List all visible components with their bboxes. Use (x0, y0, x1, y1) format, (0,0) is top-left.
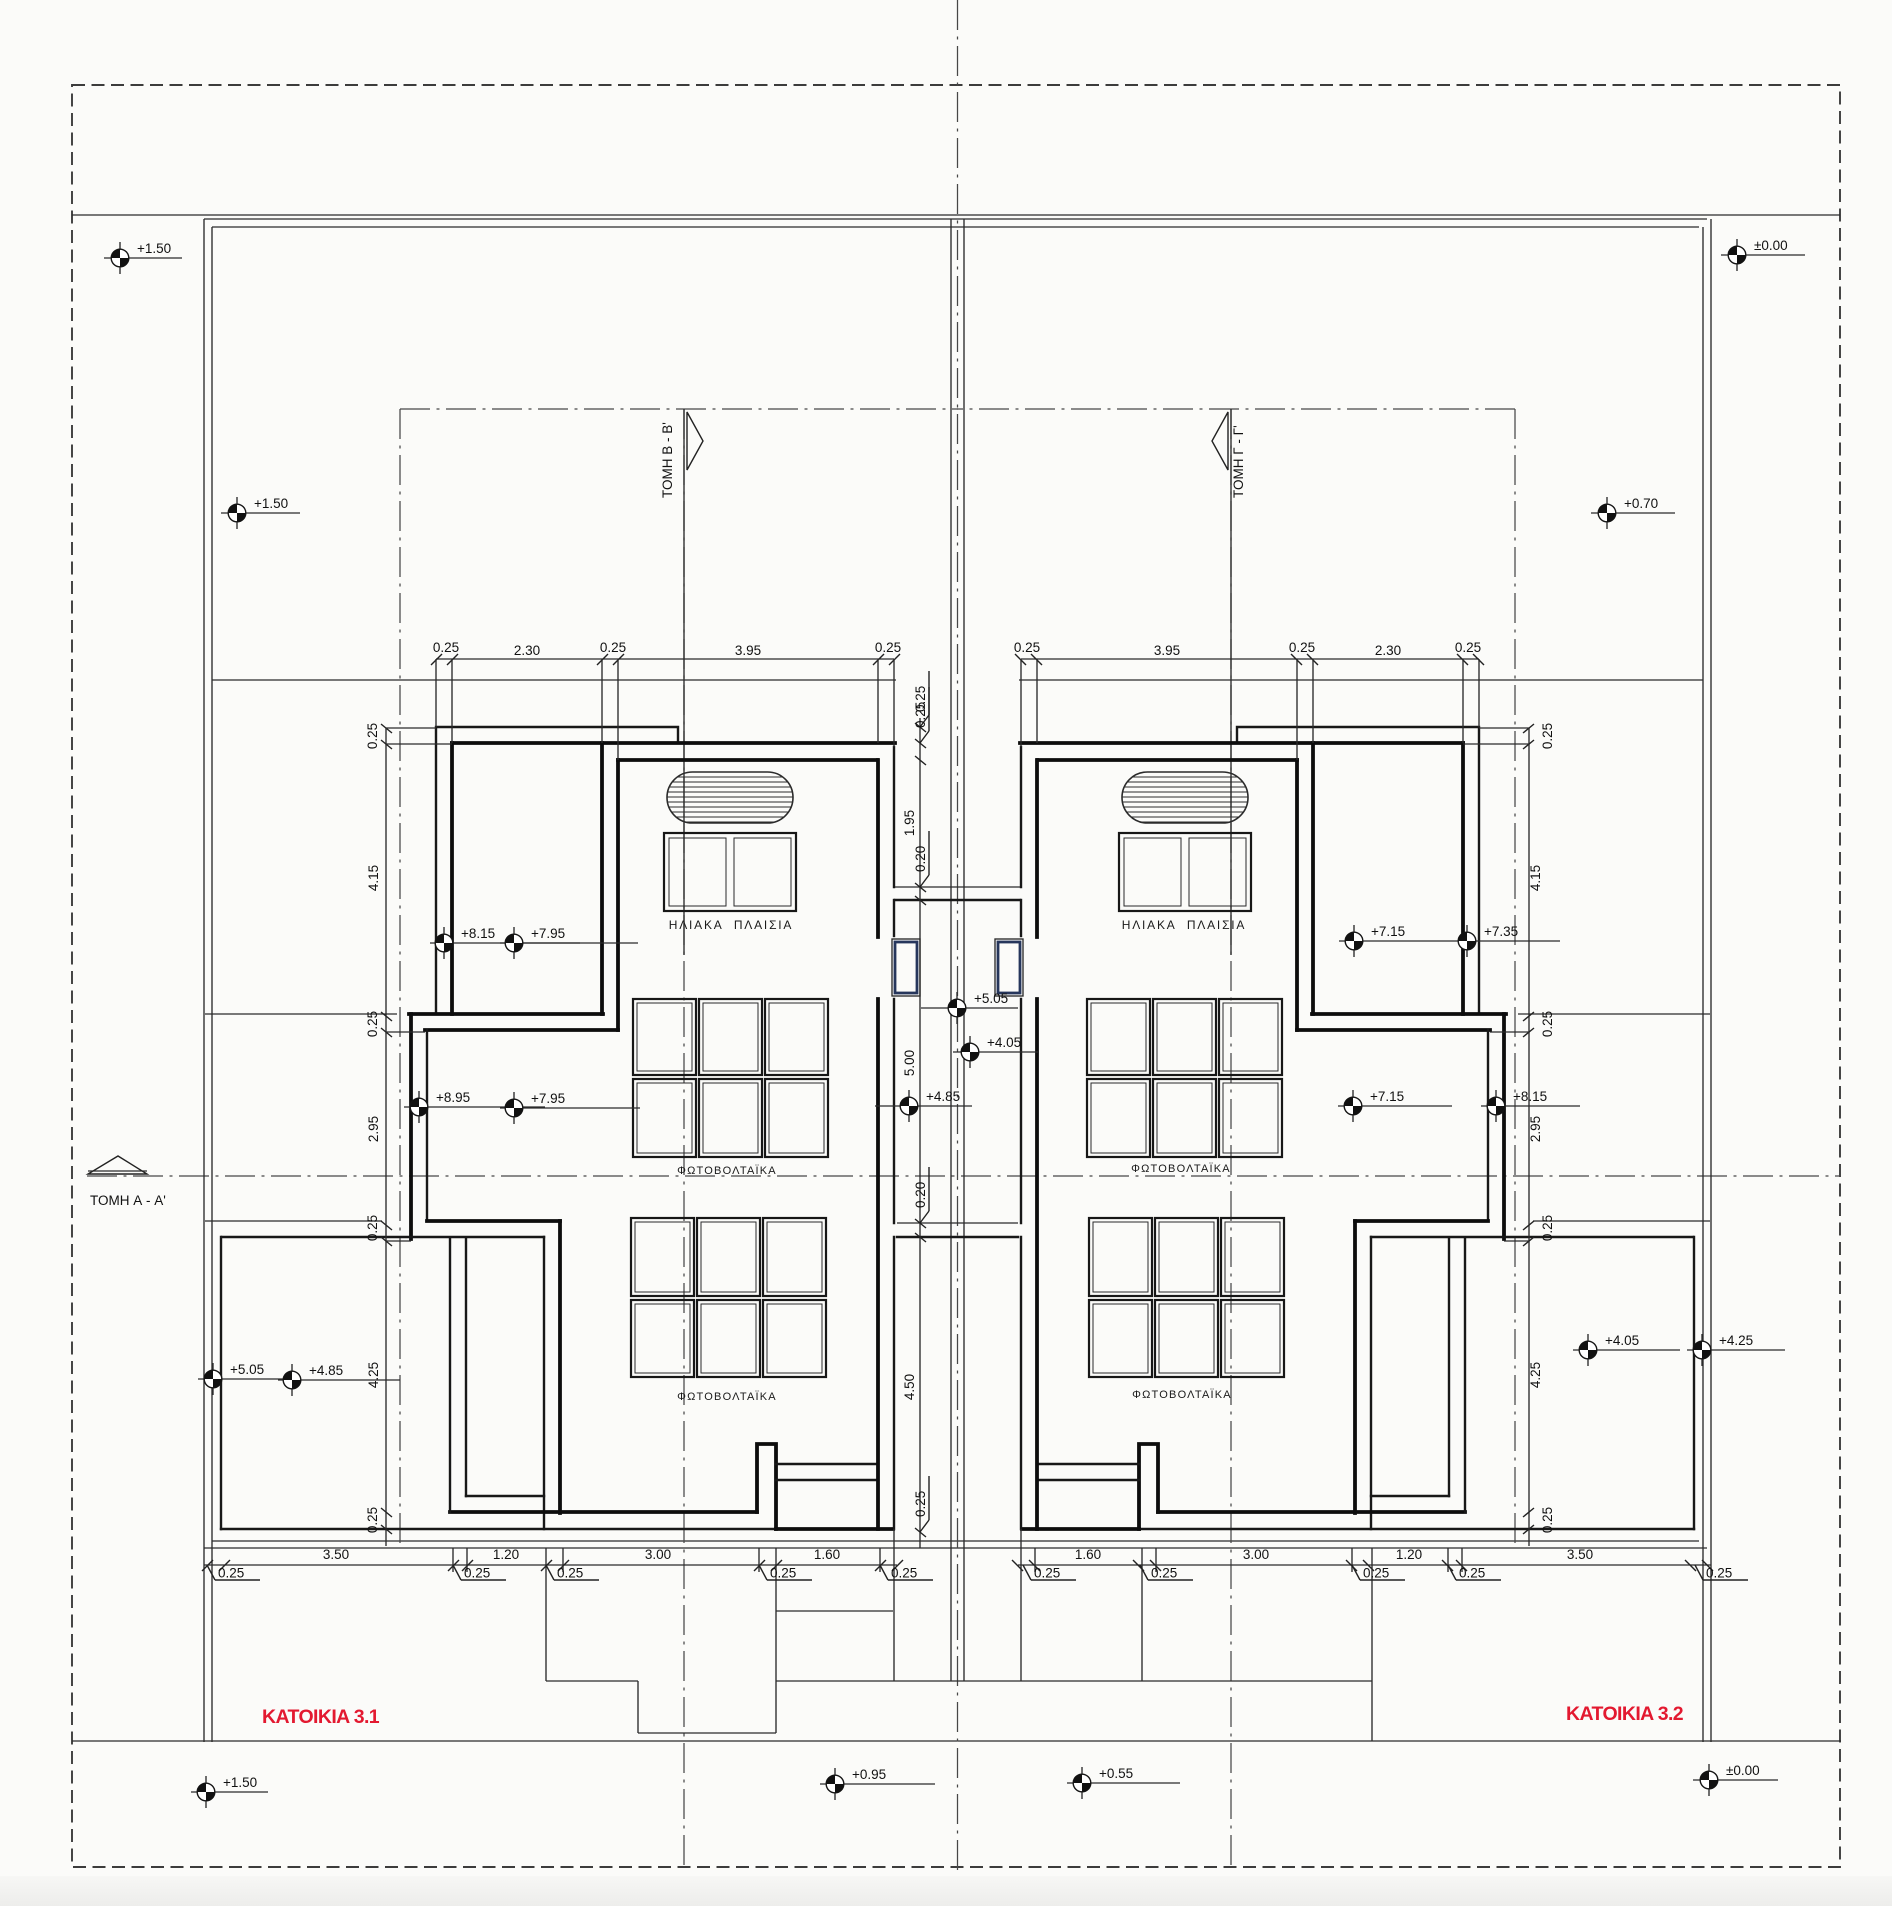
svg-text:0.25: 0.25 (1363, 1566, 1389, 1581)
svg-text:3.50: 3.50 (1567, 1547, 1593, 1562)
svg-text:4.25: 4.25 (1528, 1362, 1543, 1388)
svg-text:1.20: 1.20 (1396, 1547, 1422, 1562)
svg-text:+8.95: +8.95 (436, 1090, 470, 1105)
svg-text:0.20: 0.20 (913, 1182, 928, 1208)
svg-text:ΗΛΙΑΚΑ ΠΛΑΙΣΙΑ: ΗΛΙΑΚΑ ΠΛΑΙΣΙΑ (1122, 918, 1246, 932)
svg-text:±0.00: ±0.00 (1726, 1763, 1760, 1778)
svg-text:+1.50: +1.50 (137, 241, 171, 256)
svg-text:+1.50: +1.50 (254, 496, 288, 511)
svg-text:0.25: 0.25 (1459, 1566, 1485, 1581)
svg-text:ΤΟΜΗ Γ - Γ': ΤΟΜΗ Γ - Γ' (1231, 425, 1246, 498)
svg-text:+4.05: +4.05 (1605, 1333, 1639, 1348)
svg-text:3.00: 3.00 (1243, 1547, 1269, 1562)
svg-text:0.25: 0.25 (365, 723, 380, 749)
svg-text:ΤΟΜΗ Β - Β': ΤΟΜΗ Β - Β' (660, 422, 675, 498)
svg-text:+0.55: +0.55 (1099, 1766, 1133, 1781)
svg-text:0.25: 0.25 (1540, 1507, 1555, 1533)
svg-text:+7.95: +7.95 (531, 1091, 565, 1106)
svg-text:+4.85: +4.85 (926, 1089, 960, 1104)
svg-text:+8.15: +8.15 (1513, 1089, 1547, 1104)
svg-text:3.00: 3.00 (645, 1547, 671, 1562)
svg-text:1.95: 1.95 (902, 810, 917, 836)
svg-text:0.25: 0.25 (1540, 1011, 1555, 1037)
svg-text:0.25: 0.25 (1289, 640, 1315, 655)
svg-text:+0.70: +0.70 (1624, 496, 1658, 511)
svg-text:0.25: 0.25 (770, 1566, 796, 1581)
svg-text:0.25: 0.25 (1034, 1566, 1060, 1581)
svg-text:0.25: 0.25 (464, 1566, 490, 1581)
svg-text:0.25: 0.25 (218, 1566, 244, 1581)
svg-text:4.15: 4.15 (1528, 865, 1543, 891)
svg-text:0.25: 0.25 (1540, 1215, 1555, 1241)
svg-text:+7.15: +7.15 (1370, 1089, 1404, 1104)
svg-text:+0.95: +0.95 (852, 1767, 886, 1782)
svg-text:+7.35: +7.35 (1484, 924, 1518, 939)
svg-text:0.25: 0.25 (365, 1011, 380, 1037)
svg-text:4.50: 4.50 (902, 1374, 917, 1400)
svg-text:2.95: 2.95 (366, 1116, 381, 1142)
svg-text:0.25: 0.25 (1540, 723, 1555, 749)
svg-text:2.95: 2.95 (1528, 1116, 1543, 1142)
svg-text:4.15: 4.15 (366, 865, 381, 891)
svg-text:1.60: 1.60 (814, 1547, 840, 1562)
svg-text:±0.00: ±0.00 (1754, 238, 1788, 253)
svg-text:+5.05: +5.05 (230, 1362, 264, 1377)
svg-text:ΦΩΤΟΒΟΛΤΑΪΚΑ: ΦΩΤΟΒΟΛΤΑΪΚΑ (1132, 1389, 1232, 1401)
svg-text:0.25: 0.25 (1014, 640, 1040, 655)
svg-text:0.25: 0.25 (1455, 640, 1481, 655)
svg-text:0.25: 0.25 (875, 640, 901, 655)
svg-text:+5.05: +5.05 (974, 991, 1008, 1006)
svg-text:ΦΩΤΟΒΟΛΤΑΪΚΑ: ΦΩΤΟΒΟΛΤΑΪΚΑ (677, 1391, 777, 1403)
svg-text:KATOIKIA 3.2: KATOIKIA 3.2 (1566, 1703, 1684, 1725)
svg-text:+7.15: +7.15 (1371, 924, 1405, 939)
svg-text:+4.05: +4.05 (987, 1035, 1021, 1050)
svg-text:3.95: 3.95 (735, 643, 761, 658)
svg-text:+4.85: +4.85 (309, 1363, 343, 1378)
svg-text:0.25: 0.25 (433, 640, 459, 655)
svg-text:0.25: 0.25 (365, 1215, 380, 1241)
svg-text:4.25: 4.25 (366, 1362, 381, 1388)
svg-text:ΗΛΙΑΚΑ ΠΛΑΙΣΙΑ: ΗΛΙΑΚΑ ΠΛΑΙΣΙΑ (669, 918, 793, 932)
svg-text:1.20: 1.20 (493, 1547, 519, 1562)
svg-text:0.25: 0.25 (1706, 1566, 1732, 1581)
svg-text:KATOIKIA 3.1: KATOIKIA 3.1 (262, 1706, 380, 1728)
svg-text:ΦΩΤΟΒΟΛΤΑΪΚΑ: ΦΩΤΟΒΟΛΤΑΪΚΑ (677, 1165, 777, 1177)
svg-text:2.30: 2.30 (1375, 643, 1401, 658)
svg-text:0.25: 0.25 (600, 640, 626, 655)
svg-text:0.25: 0.25 (891, 1566, 917, 1581)
svg-text:5.00: 5.00 (902, 1050, 917, 1076)
svg-text:2.30: 2.30 (514, 643, 540, 658)
svg-text:3.95: 3.95 (1154, 643, 1180, 658)
svg-text:3.50: 3.50 (323, 1547, 349, 1562)
svg-text:ΤΟΜΗ Α - Α': ΤΟΜΗ Α - Α' (90, 1193, 166, 1208)
svg-text:0.25: 0.25 (557, 1566, 583, 1581)
svg-text:+4.25: +4.25 (1719, 1333, 1753, 1348)
svg-text:0.20: 0.20 (913, 846, 928, 872)
svg-text:+7.95: +7.95 (531, 926, 565, 941)
svg-text:0.25: 0.25 (365, 1507, 380, 1533)
svg-text:ΦΩΤΟΒΟΛΤΑΪΚΑ: ΦΩΤΟΒΟΛΤΑΪΚΑ (1131, 1163, 1231, 1175)
svg-text:0.25: 0.25 (913, 702, 928, 728)
svg-text:0.25: 0.25 (1151, 1566, 1177, 1581)
svg-text:0.25: 0.25 (913, 1491, 928, 1517)
svg-text:+8.15: +8.15 (461, 926, 495, 941)
svg-text:1.60: 1.60 (1075, 1547, 1101, 1562)
svg-text:+1.50: +1.50 (223, 1775, 257, 1790)
